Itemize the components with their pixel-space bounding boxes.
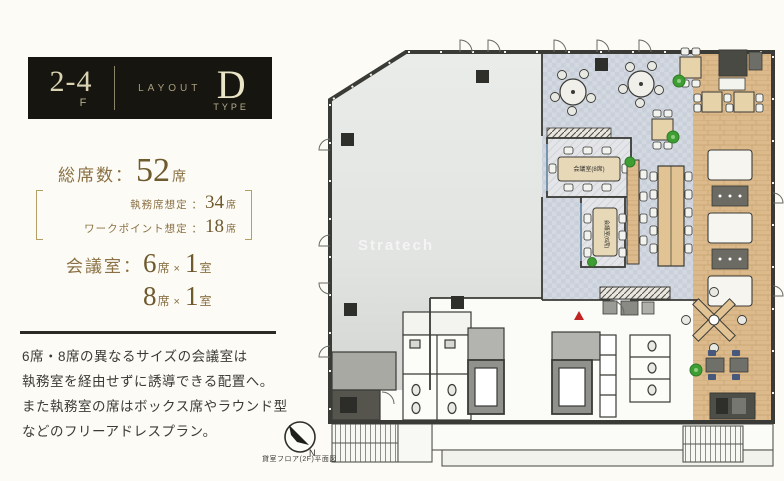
work-desks xyxy=(627,160,692,266)
description-line: また執務室の席はボックス席やラウンド型 xyxy=(22,394,298,419)
layout-letter: D xyxy=(213,65,249,105)
total-seats-value: 52 xyxy=(136,152,170,190)
layout-type: LAYOUT D TYPE xyxy=(115,65,272,112)
meeting-room-6: 会議室(6席) xyxy=(581,197,626,267)
bracket-left xyxy=(36,190,43,240)
total-seats: 総席数： 52 席 xyxy=(58,152,186,190)
meeting2-count: 1 xyxy=(185,281,199,312)
desk-seats-value: 34 xyxy=(205,192,224,214)
breakdown-row-desk: 執務席想定 ： 34 席 xyxy=(130,192,236,214)
total-seats-unit: 席 xyxy=(172,166,186,186)
meeting2-seats: 8 xyxy=(143,281,157,312)
meeting1-times: × xyxy=(174,263,180,275)
bracket-right xyxy=(245,190,252,240)
seat-breakdown: 執務席想定 ： 34 席 ワークポイント想定 ： 18 席 xyxy=(36,190,252,240)
floor-number: 2-4 F xyxy=(28,67,114,109)
booth-seats xyxy=(708,150,752,306)
breakdown-row-workpoint: ワークポイント想定 ： 18 席 xyxy=(84,216,236,238)
description-line: 6席・8席の異なるサイズの会議室は xyxy=(22,344,298,369)
watermark: Stratech xyxy=(358,237,434,254)
meeting1-seat-unit: 席 xyxy=(158,259,170,276)
meeting1-count: 1 xyxy=(185,248,199,279)
floor-number-text: 2-4 xyxy=(28,67,114,97)
desk-seats-label: 執務席想定 ： xyxy=(130,197,203,212)
floor-layout-badge: 2-4 F LAYOUT D TYPE xyxy=(28,57,272,119)
meeting-row-1: 会議室： 6 席 × 1 室 xyxy=(66,248,211,279)
meeting1-room-unit: 室 xyxy=(199,259,211,276)
section-divider xyxy=(20,331,276,334)
description-paragraph: 6席・8席の異なるサイズの会議室は 執務室を経由せずに誘導できる配置へ。 また執… xyxy=(22,344,298,444)
service-room xyxy=(403,312,471,335)
description-line: 執務室を経由せずに誘導できる配置へ。 xyxy=(22,369,298,394)
stair-landing xyxy=(398,424,432,462)
meeting-label: 会議室： xyxy=(66,252,142,277)
elevator-machine-room xyxy=(468,328,504,360)
workpoint-unit: 席 xyxy=(226,220,236,235)
meeting-room-6-label: 会議室(6席) xyxy=(603,220,611,249)
meeting2-room-unit: 室 xyxy=(199,292,211,309)
flyer-page: 2-4 F LAYOUT D TYPE 総席数： 52 席 執務席想定 ： 34… xyxy=(0,0,784,481)
layout-type-label: TYPE xyxy=(213,103,249,112)
description-line: などのフリーアドレスプラン。 xyxy=(22,419,298,444)
locker-column xyxy=(600,335,616,417)
workpoint-value: 18 xyxy=(205,216,224,238)
plan-caption: 貸室フロア(2F)平面図 xyxy=(262,454,337,464)
elevator-car xyxy=(559,368,585,406)
machine-room xyxy=(332,352,396,390)
stairs-and-corridor xyxy=(332,424,773,466)
floor-suffix: F xyxy=(28,98,114,109)
meeting1-seats: 6 xyxy=(143,248,157,279)
desk-seats-unit: 席 xyxy=(226,196,236,211)
floor-plan: Stratech xyxy=(300,0,784,481)
meeting-room-8: 会議室(8席) xyxy=(547,128,631,197)
total-seats-label: 総席数： xyxy=(58,161,134,186)
meeting2-seat-unit: 席 xyxy=(158,292,170,309)
meeting-room-summary: 会議室： 6 席 × 1 室 8 席 × 1 室 xyxy=(66,248,211,312)
elevator-machine-room xyxy=(552,332,600,360)
meeting-room-8-label: 会議室(8席) xyxy=(573,165,604,173)
workpoint-label: ワークポイント想定 ： xyxy=(84,221,203,236)
meeting2-times: × xyxy=(174,296,180,308)
layout-label: LAYOUT xyxy=(138,83,201,94)
meeting-row-2: 8 席 × 1 室 xyxy=(142,281,211,312)
elevator-car xyxy=(475,368,497,406)
counter-cabinet xyxy=(627,160,639,264)
